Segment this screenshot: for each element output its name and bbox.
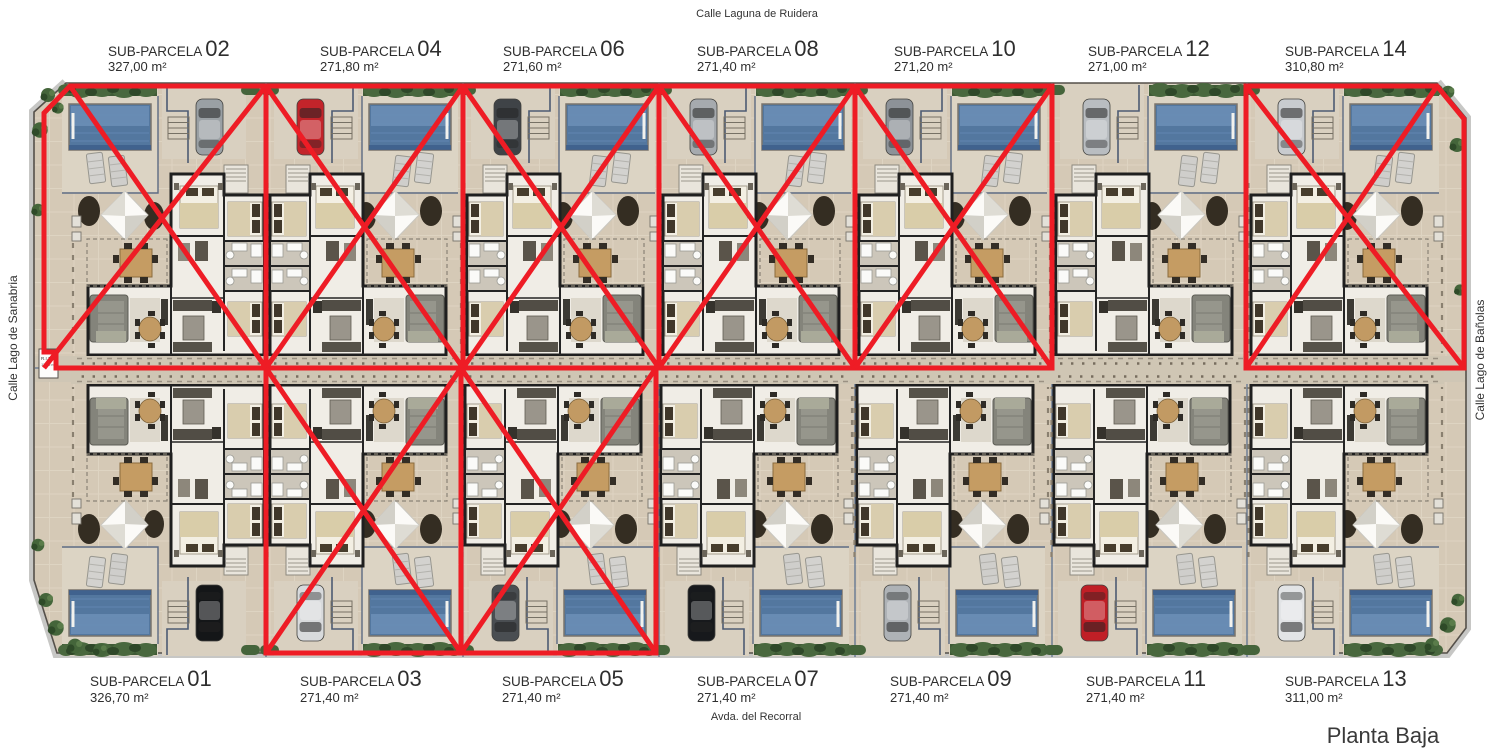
svg-text:271,40 m²: 271,40 m² — [697, 59, 756, 74]
svg-text:Calle Laguna de Ruidera: Calle Laguna de Ruidera — [696, 8, 819, 20]
svg-text:Planta Baja: Planta Baja — [1327, 723, 1440, 748]
svg-text:Avda. del Recorral: Avda. del Recorral — [711, 711, 801, 723]
svg-text:271,40 m²: 271,40 m² — [1086, 690, 1145, 705]
svg-text:327,00 m²: 327,00 m² — [108, 59, 167, 74]
svg-text:271,40 m²: 271,40 m² — [300, 690, 359, 705]
svg-text:Calle Lago de Sanabria: Calle Lago de Sanabria — [6, 275, 20, 401]
svg-text:271,40 m²: 271,40 m² — [890, 690, 949, 705]
svg-text:271,60 m²: 271,60 m² — [503, 59, 562, 74]
svg-text:271,20 m²: 271,20 m² — [894, 59, 953, 74]
svg-text:326,70 m²: 326,70 m² — [90, 690, 149, 705]
svg-text:271,40 m²: 271,40 m² — [697, 690, 756, 705]
svg-text:310,80 m²: 310,80 m² — [1285, 59, 1344, 74]
svg-text:271,40 m²: 271,40 m² — [502, 690, 561, 705]
svg-text:271,00 m²: 271,00 m² — [1088, 59, 1147, 74]
svg-text:271,80 m²: 271,80 m² — [320, 59, 379, 74]
svg-text:Calle Lago de Bañolas: Calle Lago de Bañolas — [1473, 300, 1487, 421]
svg-text:311,00 m²: 311,00 m² — [1285, 690, 1343, 705]
